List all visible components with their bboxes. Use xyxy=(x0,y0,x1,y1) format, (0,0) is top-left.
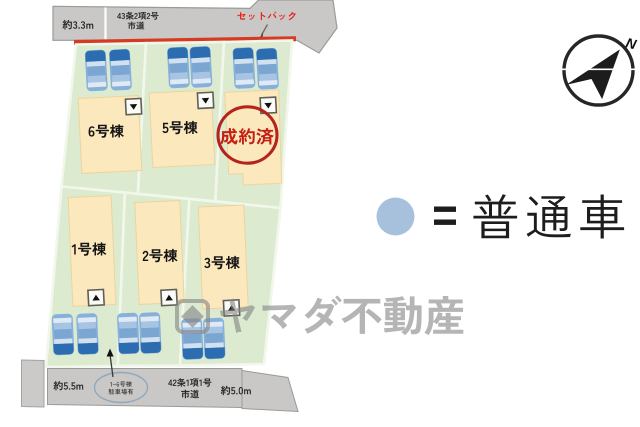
svg-text:N: N xyxy=(624,34,639,52)
